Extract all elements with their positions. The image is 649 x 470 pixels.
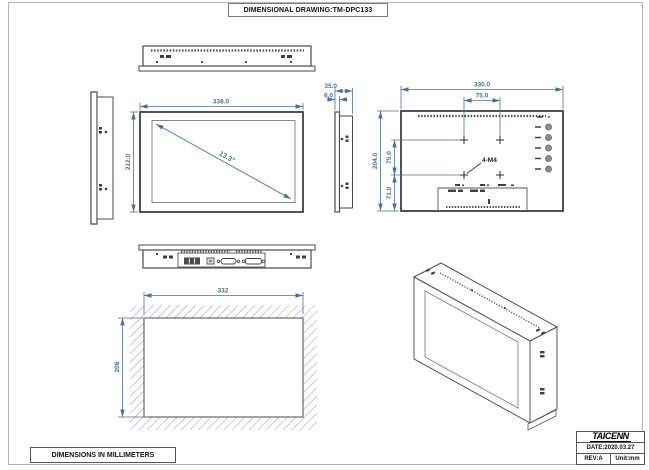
title-block-date-row: DATE:2020.03.27: [577, 443, 644, 454]
dimensions-note: DIMENSIONS IN MILLIMETERS: [52, 452, 155, 459]
label-mounting-holes: 4-M4: [482, 157, 497, 164]
isometric-view: [414, 263, 557, 430]
title-block-logo-row: TAICENN: [577, 432, 644, 443]
dim-front-width: 338.0: [213, 99, 230, 106]
dim-rear-height: 204.0: [372, 152, 379, 169]
cutout-view: 332 206: [114, 288, 317, 431]
dim-front-height: 212.0: [125, 153, 132, 170]
front-view: 13.3" 338.0 212.0: [125, 99, 303, 213]
footer-note-box: DIMENSIONS IN MILLIMETERS: [30, 447, 176, 463]
cutout-opening: [144, 318, 303, 417]
drawing-sheet: DIMENSIONAL DRAWING:TM-DPC133: [0, 0, 649, 470]
title-block-rev-row: REV:A Unit:mm: [577, 454, 644, 464]
side-view-edge: 35.0 6.0: [324, 83, 353, 212]
bottom-view: [139, 245, 315, 268]
vga-connector: [221, 259, 236, 265]
date-label: DATE:2020.03.27: [587, 445, 635, 451]
dim-side-depth: 35.0: [324, 83, 337, 90]
revision-label: REV:A: [577, 454, 611, 464]
dim-vesa-horizontal: 75.0: [476, 93, 489, 100]
io-connectors: [184, 258, 265, 265]
top-view: [139, 46, 315, 71]
dim-cutout-height: 206: [114, 361, 121, 372]
rear-view: 4-M4: [372, 82, 563, 212]
drawing-canvas: 13.3" 338.0 212.0: [0, 0, 649, 470]
dim-vesa-vertical: 75.0: [386, 151, 393, 164]
dvi-connector: [246, 259, 262, 265]
dim-rear-width: 330.0: [474, 82, 491, 89]
dim-bottom-offset: 71.0: [386, 186, 393, 199]
dim-side-bezel: 6.0: [324, 93, 333, 100]
title-block-table: TAICENN DATE:2020.03.27 REV:A Unit:mm: [576, 431, 645, 465]
side-view-left: [91, 92, 113, 224]
dim-side-depth-lines: [335, 88, 353, 114]
brand-logo: TAICENN: [590, 432, 631, 442]
unit-label: Unit:mm: [611, 454, 644, 464]
iso-right-face: [530, 327, 557, 423]
dim-cutout-width: 332: [218, 288, 229, 295]
power-terminal-connector: [184, 258, 200, 265]
